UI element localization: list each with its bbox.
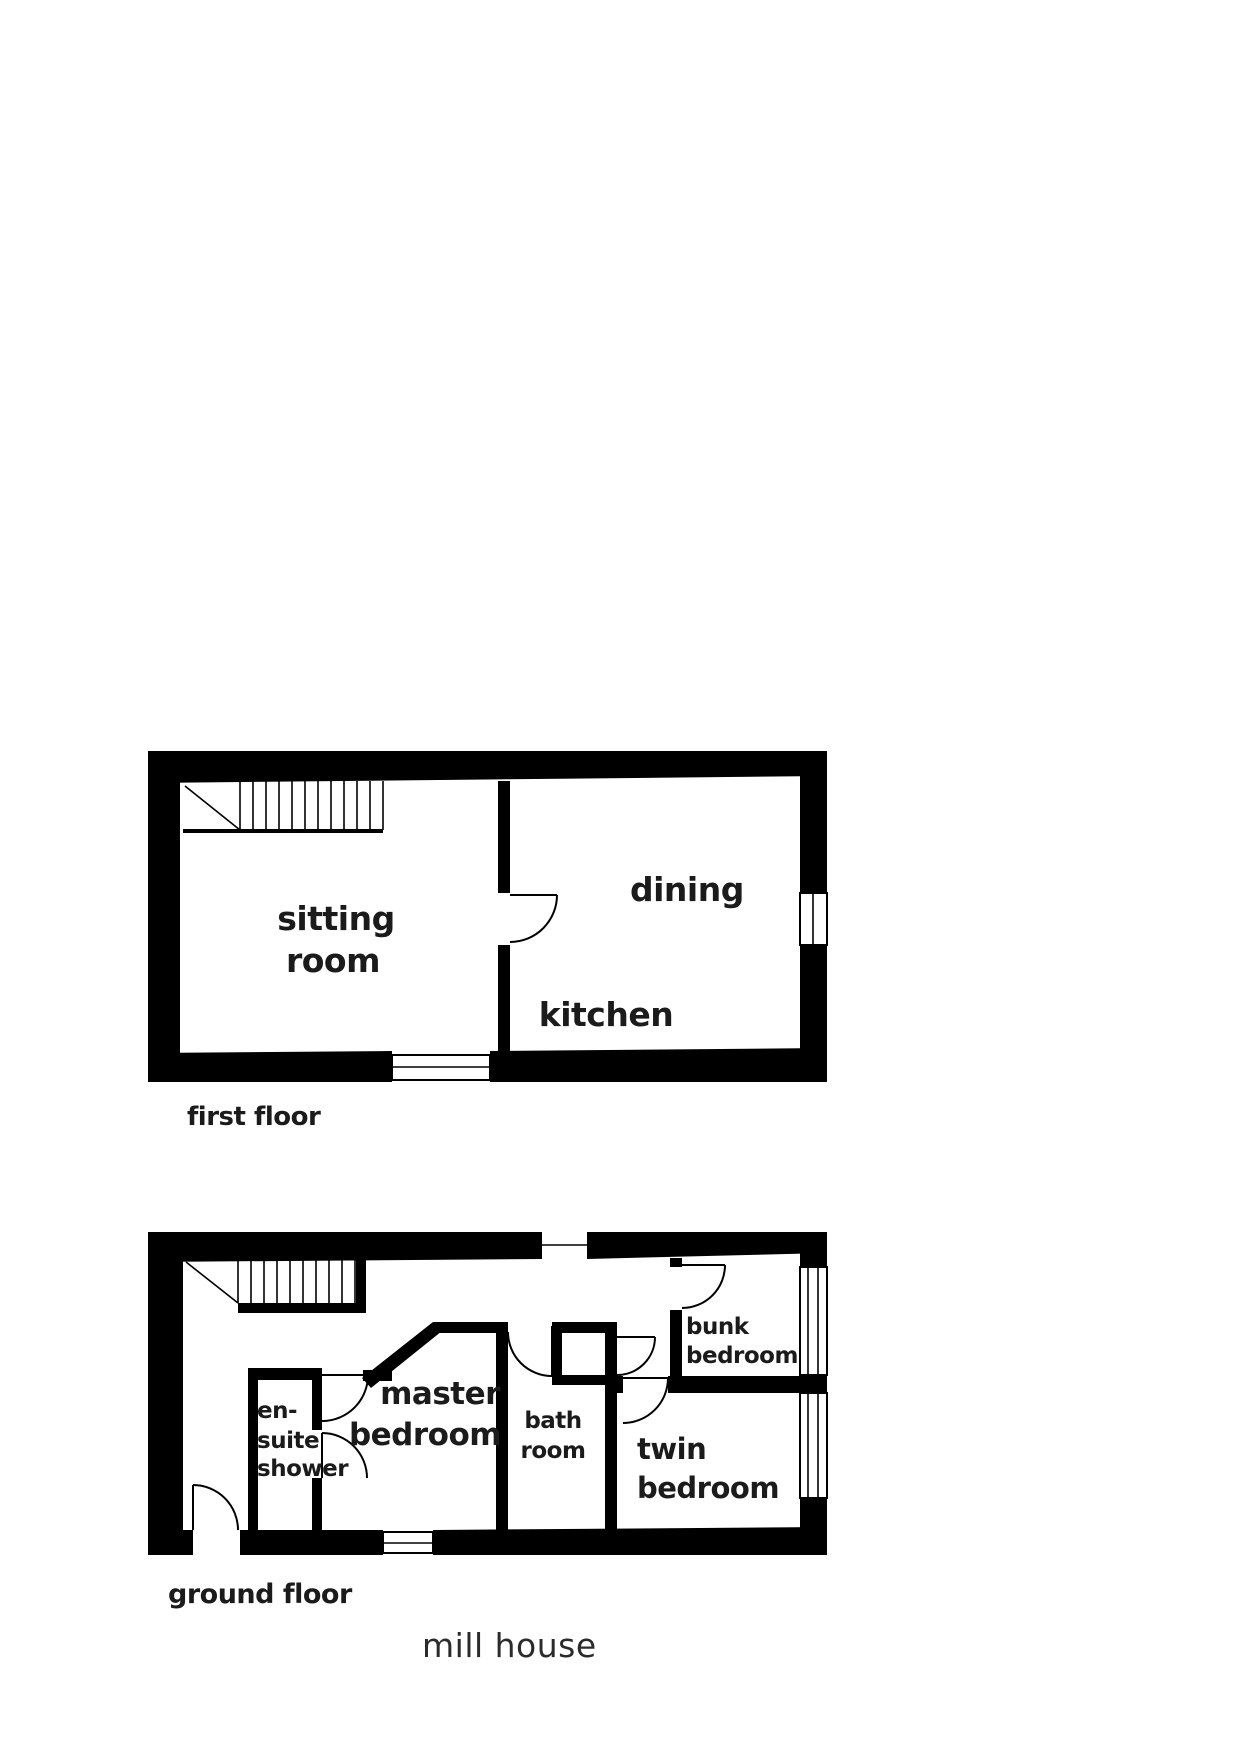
bunk-bedroom-walls bbox=[670, 1258, 682, 1376]
room-label-bunk: bunk bbox=[686, 1314, 750, 1340]
room-label-master: master bbox=[380, 1376, 501, 1412]
window bbox=[383, 1532, 433, 1553]
room-label-sitting: sitting bbox=[277, 899, 394, 938]
window bbox=[800, 1393, 827, 1498]
door-arc bbox=[617, 1337, 655, 1375]
room-label-ensuite-3: shower bbox=[257, 1456, 349, 1482]
room-label-bath: bath bbox=[524, 1408, 581, 1434]
door-arc bbox=[623, 1378, 668, 1423]
page-title: mill house bbox=[422, 1626, 597, 1665]
room-label-dining: dining bbox=[630, 870, 744, 909]
stairs-icon bbox=[183, 781, 383, 833]
first-floor-plan: sitting room dining kitchen bbox=[148, 751, 827, 1082]
room-label-sitting-2: room bbox=[286, 941, 380, 980]
door-arc bbox=[322, 1375, 368, 1421]
window bbox=[392, 1055, 490, 1080]
cupboard-walls bbox=[552, 1322, 617, 1385]
first-floor-caption: first floor bbox=[187, 1102, 320, 1132]
stairs-icon bbox=[186, 1258, 366, 1313]
room-label-kitchen: kitchen bbox=[539, 995, 673, 1034]
door-arc bbox=[508, 1326, 552, 1376]
room-label-master-2: bedroom bbox=[349, 1417, 501, 1453]
door-arc bbox=[193, 1485, 238, 1530]
door-arc bbox=[682, 1265, 725, 1308]
room-label-ensuite-2: suite bbox=[257, 1428, 319, 1454]
ground-floor-plan: en- suite shower master bedroom bath roo… bbox=[148, 1232, 827, 1555]
room-label-ensuite-1: en- bbox=[257, 1398, 297, 1424]
room-label-twin: twin bbox=[637, 1432, 706, 1466]
room-label-twin-2: bedroom bbox=[637, 1471, 779, 1505]
room-label-bunk-2: bedroom bbox=[686, 1343, 798, 1369]
floor-plan-page: sitting room dining kitchen bbox=[0, 0, 1240, 1755]
window bbox=[800, 893, 827, 945]
first-floor-walls bbox=[148, 751, 827, 1082]
door-arc bbox=[510, 895, 557, 942]
ground-floor-caption: ground floor bbox=[168, 1579, 352, 1610]
window bbox=[800, 1267, 827, 1375]
room-label-bath-2: room bbox=[521, 1438, 586, 1464]
